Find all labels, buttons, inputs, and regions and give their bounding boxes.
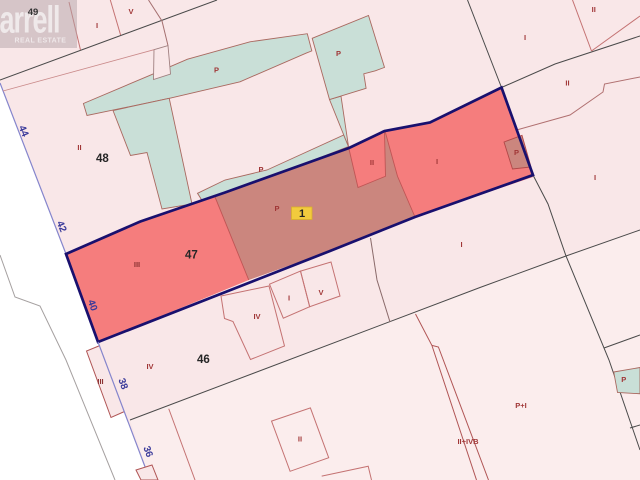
svg-text:P: P: [258, 165, 263, 174]
svg-text:P: P: [336, 49, 341, 58]
svg-text:II: II: [565, 79, 569, 88]
svg-text:V: V: [318, 288, 323, 297]
svg-text:V: V: [128, 7, 133, 16]
svg-text:46: 46: [197, 354, 210, 366]
svg-text:P: P: [621, 375, 626, 384]
svg-text:I: I: [594, 173, 596, 182]
svg-text:II: II: [298, 435, 302, 444]
svg-text:47: 47: [185, 250, 198, 262]
svg-text:IV: IV: [253, 312, 260, 321]
svg-text:II: II: [370, 158, 374, 167]
svg-text:II+IVB: II+IVB: [457, 437, 479, 446]
svg-text:48: 48: [96, 153, 109, 165]
svg-text:II: II: [592, 5, 596, 14]
svg-text:P: P: [274, 204, 279, 213]
svg-text:49: 49: [28, 7, 39, 18]
svg-text:I: I: [436, 157, 438, 166]
svg-text:I: I: [288, 294, 290, 303]
svg-text:III: III: [134, 260, 140, 269]
svg-text:II: II: [77, 143, 81, 152]
svg-text:I: I: [96, 21, 98, 30]
svg-text:P+I: P+I: [515, 401, 526, 410]
svg-text:I: I: [524, 33, 526, 42]
svg-text:REAL ESTATE: REAL ESTATE: [15, 37, 67, 44]
svg-text:I: I: [460, 240, 462, 249]
svg-text:P: P: [214, 66, 219, 75]
svg-text:IV: IV: [146, 362, 153, 371]
svg-text:1: 1: [299, 208, 305, 220]
svg-text:P: P: [514, 148, 519, 157]
svg-text:III: III: [97, 377, 103, 386]
